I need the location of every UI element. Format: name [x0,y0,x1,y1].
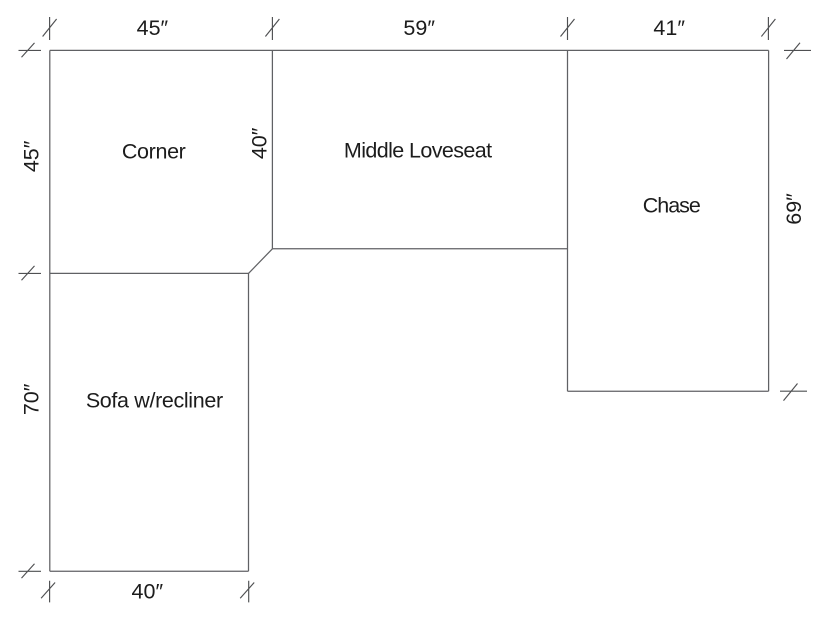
svg-text:40″: 40″ [132,580,164,604]
svg-text:45″: 45″ [19,140,43,172]
svg-text:40″: 40″ [247,127,271,159]
svg-text:Middle Loveseat: Middle Loveseat [344,139,492,163]
svg-text:Chase: Chase [643,193,700,217]
svg-text:41″: 41″ [653,16,685,40]
svg-text:Corner: Corner [122,140,186,164]
svg-text:69″: 69″ [782,193,806,225]
svg-text:70″: 70″ [20,383,44,415]
svg-text:45″: 45″ [137,16,169,40]
svg-text:59″: 59″ [403,16,435,40]
svg-text:Sofa w/recliner: Sofa w/recliner [86,389,223,413]
